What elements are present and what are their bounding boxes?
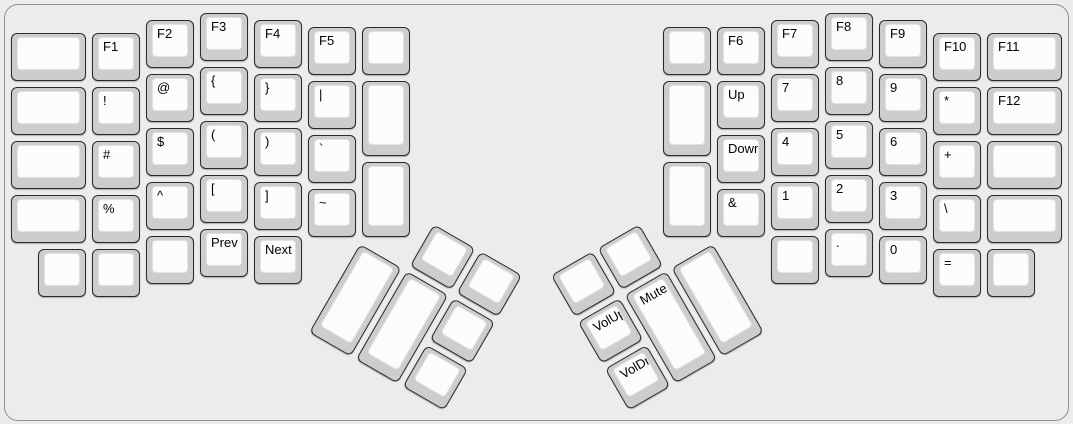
key-label: = — [940, 254, 974, 270]
key-label: F10 — [940, 38, 974, 54]
key-f10[interactable]: F10 — [933, 33, 981, 81]
keycap-top: F1 — [98, 37, 134, 70]
key-blank-r03[interactable] — [663, 162, 711, 237]
keycap-top: Next — [260, 240, 296, 273]
keycap-top: [ — [206, 179, 242, 212]
key-label: ` — [315, 140, 349, 156]
key-blank-r04[interactable] — [771, 236, 819, 284]
key-label: F5 — [315, 32, 349, 48]
keycap-top: 8 — [831, 71, 867, 104]
keycap-top: + — [939, 145, 975, 178]
keycap-top — [98, 253, 134, 286]
keycap-top: ^ — [152, 186, 188, 219]
key-7[interactable]: 7 — [771, 74, 819, 122]
key-ampersand[interactable]: & — [717, 189, 765, 237]
key-label: $ — [153, 133, 187, 149]
key-f11[interactable]: F11 — [987, 33, 1062, 81]
key-label: F9 — [886, 25, 920, 41]
keycap-top — [669, 85, 705, 145]
key-label: % — [99, 200, 133, 216]
keycap-top: # — [98, 145, 134, 178]
key-exclamation[interactable]: ! — [92, 87, 140, 135]
key-f2[interactable]: F2 — [146, 20, 194, 68]
key-blank-l07[interactable] — [146, 236, 194, 284]
key-label: + — [940, 146, 974, 162]
key-prev-track[interactable]: Prev — [200, 229, 248, 277]
key-percent[interactable]: % — [92, 195, 140, 243]
key-label: 2 — [832, 180, 866, 196]
key-f3[interactable]: F3 — [200, 13, 248, 61]
keycap-top: Down — [723, 139, 759, 172]
keycap-top: F3 — [206, 17, 242, 50]
keycap-top: Prev — [206, 233, 242, 266]
keycap-top — [17, 37, 80, 70]
key-label: ~ — [315, 194, 349, 210]
key-label: 8 — [832, 72, 866, 88]
key-label: ( — [207, 126, 241, 142]
key-blank-l04[interactable] — [11, 195, 86, 243]
key-8[interactable]: 8 — [825, 67, 873, 115]
key-equals[interactable]: = — [933, 249, 981, 297]
keycap-top: & — [723, 193, 759, 226]
key-blank-r05[interactable] — [987, 141, 1062, 189]
key-label: F1 — [99, 38, 133, 54]
keycap-top: 2 — [831, 179, 867, 212]
key-f8[interactable]: F8 — [825, 13, 873, 61]
keycap-top — [44, 253, 80, 286]
keycap-top: F2 — [152, 24, 188, 57]
key-blank-l05[interactable] — [38, 249, 86, 297]
keycap-top — [669, 31, 705, 64]
key-f5[interactable]: F5 — [308, 27, 356, 75]
key-pipe[interactable]: | — [308, 81, 356, 129]
keycap-top: 0 — [885, 240, 921, 273]
keycap-top: * — [939, 91, 975, 124]
key-label: Down — [724, 140, 758, 156]
keycap-top: ( — [206, 125, 242, 158]
key-close-bracket[interactable]: ] — [254, 182, 302, 230]
key-asterisk[interactable]: * — [933, 87, 981, 135]
key-label: F8 — [832, 18, 866, 34]
key-label: # — [99, 146, 133, 162]
keycap-top — [993, 199, 1056, 232]
keycap-top: F5 — [314, 31, 350, 64]
key-f1[interactable]: F1 — [92, 33, 140, 81]
key-label: @ — [153, 79, 187, 95]
keycap-top: F10 — [939, 37, 975, 70]
key-3[interactable]: 3 — [879, 182, 927, 230]
key-blank-l09[interactable] — [362, 81, 410, 156]
key-9[interactable]: 9 — [879, 74, 927, 122]
key-label: 4 — [778, 133, 812, 149]
keycap-top: ] — [260, 186, 296, 219]
keycap-top: 9 — [885, 78, 921, 111]
key-backtick[interactable]: ` — [308, 135, 356, 183]
key-open-paren[interactable]: ( — [200, 121, 248, 169]
key-label: F7 — [778, 25, 812, 41]
keycap-top: } — [260, 78, 296, 111]
keycap-top: 1 — [777, 186, 813, 219]
keycap-top: 7 — [777, 78, 813, 111]
key-4[interactable]: 4 — [771, 128, 819, 176]
key-f4[interactable]: F4 — [254, 20, 302, 68]
key-f6[interactable]: F6 — [717, 27, 765, 75]
key-label: \ — [940, 200, 974, 216]
key-label: & — [724, 194, 758, 210]
key-6[interactable]: 6 — [879, 128, 927, 176]
key-label: ] — [261, 187, 295, 203]
keycap-top — [993, 253, 1029, 286]
keyboard-layout-canvas: F1!#%F2@$^F3{([PrevF4})]NextF5|`~F6UpDow… — [0, 0, 1073, 424]
key-label: . — [832, 234, 866, 250]
key-label: Prev — [207, 234, 241, 250]
keycap-top: F11 — [993, 37, 1056, 70]
key-label: * — [940, 92, 974, 108]
key-f9[interactable]: F9 — [879, 20, 927, 68]
key-f12[interactable]: F12 — [987, 87, 1062, 135]
key-open-brace[interactable]: { — [200, 67, 248, 115]
keycap-top: 3 — [885, 186, 921, 219]
key-blank-r06[interactable] — [987, 195, 1062, 243]
key-close-brace[interactable]: } — [254, 74, 302, 122]
key-caret[interactable]: ^ — [146, 182, 194, 230]
keycap-top — [17, 91, 80, 124]
key-5[interactable]: 5 — [825, 121, 873, 169]
keycap-top: $ — [152, 132, 188, 165]
key-label: ^ — [153, 187, 187, 203]
key-blank-l08[interactable] — [362, 27, 410, 75]
key-1[interactable]: 1 — [771, 182, 819, 230]
key-hash[interactable]: # — [92, 141, 140, 189]
keycap-top — [777, 240, 813, 273]
key-label: Next — [261, 241, 295, 257]
key-period[interactable]: . — [825, 229, 873, 277]
keycap-top: { — [206, 71, 242, 104]
keycap-top: F12 — [993, 91, 1056, 124]
key-label: F3 — [207, 18, 241, 34]
key-label: 5 — [832, 126, 866, 142]
keycap-top: F4 — [260, 24, 296, 57]
keycap-top — [368, 166, 404, 226]
key-blank-l01[interactable] — [11, 33, 86, 81]
key-label: { — [207, 72, 241, 88]
key-at[interactable]: @ — [146, 74, 194, 122]
key-dollar[interactable]: $ — [146, 128, 194, 176]
keycap-top — [368, 85, 404, 145]
keycap-top — [669, 166, 705, 226]
key-open-bracket[interactable]: [ — [200, 175, 248, 223]
keycap-top: F6 — [723, 31, 759, 64]
keycap-top: ) — [260, 132, 296, 165]
key-label: 3 — [886, 187, 920, 203]
keycap-top — [17, 145, 80, 178]
key-backslash[interactable]: \ — [933, 195, 981, 243]
key-next-track[interactable]: Next — [254, 236, 302, 284]
key-blank-l10[interactable] — [362, 162, 410, 237]
key-up[interactable]: Up — [717, 81, 765, 129]
key-blank-r07[interactable] — [987, 249, 1035, 297]
key-blank-l02[interactable] — [11, 87, 86, 135]
key-down[interactable]: Down — [717, 135, 765, 183]
key-label: F6 — [724, 32, 758, 48]
key-label: 1 — [778, 187, 812, 203]
key-label: F11 — [994, 38, 1055, 54]
key-label: ! — [99, 92, 133, 108]
key-label: F2 — [153, 25, 187, 41]
keycap-top: F9 — [885, 24, 921, 57]
key-plus[interactable]: + — [933, 141, 981, 189]
key-0[interactable]: 0 — [879, 236, 927, 284]
key-label: 7 — [778, 79, 812, 95]
key-blank-l03[interactable] — [11, 141, 86, 189]
key-close-paren[interactable]: ) — [254, 128, 302, 176]
keycap-top: F7 — [777, 24, 813, 57]
keycap-top — [368, 31, 404, 64]
key-blank-r01[interactable] — [663, 27, 711, 75]
key-blank-l06[interactable] — [92, 249, 140, 297]
keycap-top: @ — [152, 78, 188, 111]
key-label: ) — [261, 133, 295, 149]
keycap-top: ` — [314, 139, 350, 172]
key-label: | — [315, 86, 349, 102]
key-label: 0 — [886, 241, 920, 257]
key-label: [ — [207, 180, 241, 196]
keycap-top: F8 — [831, 17, 867, 50]
keycap-top: ~ — [314, 193, 350, 226]
keycap-top: = — [939, 253, 975, 286]
key-blank-r02[interactable] — [663, 81, 711, 156]
key-2[interactable]: 2 — [825, 175, 873, 223]
key-label: F12 — [994, 92, 1055, 108]
keycap-top: 4 — [777, 132, 813, 165]
key-label: F4 — [261, 25, 295, 41]
keycap-top: | — [314, 85, 350, 118]
key-label: } — [261, 79, 295, 95]
keycap-top: 5 — [831, 125, 867, 158]
keycap-top: ! — [98, 91, 134, 124]
key-f7[interactable]: F7 — [771, 20, 819, 68]
key-tilde[interactable]: ~ — [308, 189, 356, 237]
key-label: 6 — [886, 133, 920, 149]
keycap-top: \ — [939, 199, 975, 232]
keycap-top: 6 — [885, 132, 921, 165]
key-label: Up — [724, 86, 758, 102]
keycap-top — [17, 199, 80, 232]
keycap-top — [152, 240, 188, 273]
keycap-top — [993, 145, 1056, 178]
keycap-top: . — [831, 233, 867, 266]
key-label: 9 — [886, 79, 920, 95]
keycap-top: % — [98, 199, 134, 232]
keycap-top: Up — [723, 85, 759, 118]
